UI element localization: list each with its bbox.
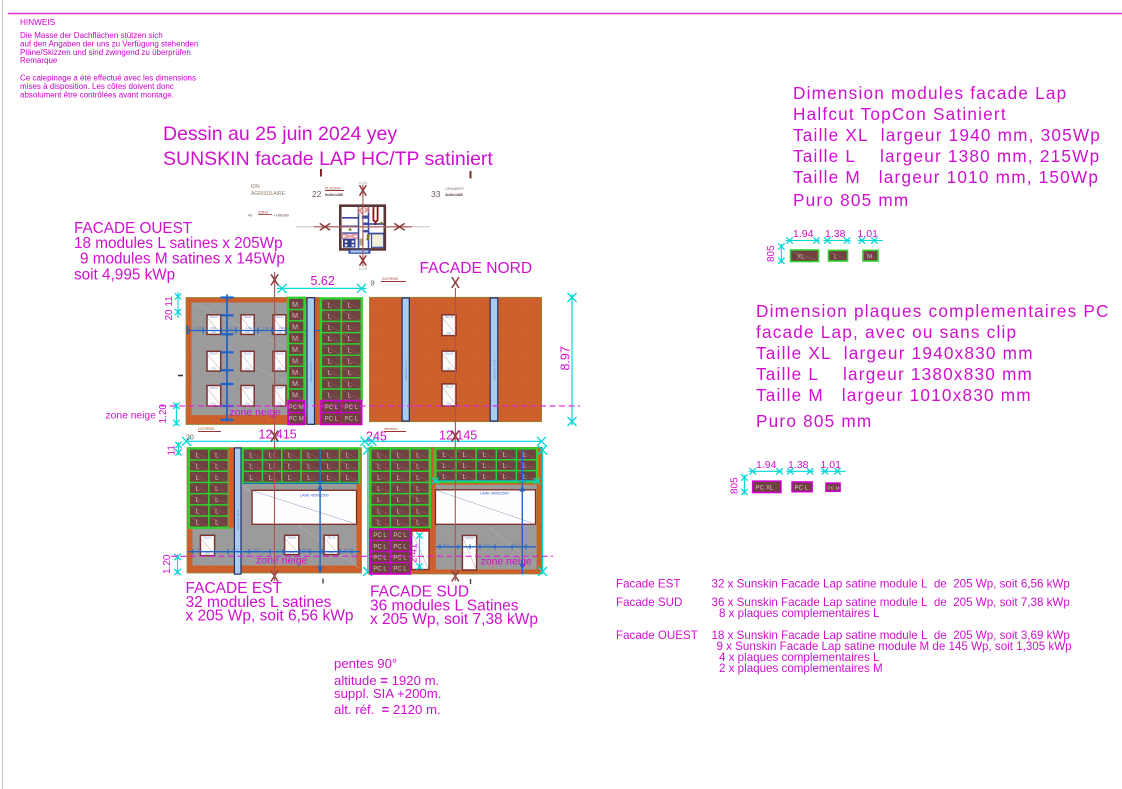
- svg-text:Puro 805 mm: Puro 805 mm: [756, 411, 872, 431]
- svg-text:GGL: GGL: [447, 369, 453, 371]
- svg-text:HINWEIS: HINWEIS: [20, 18, 56, 27]
- svg-text:GGL: GGL: [211, 404, 217, 406]
- svg-text:absolument être contrôlées ava: absolument être contrôlées avant montage…: [20, 90, 174, 99]
- svg-text:L: L: [396, 473, 400, 482]
- svg-text:L: L: [346, 473, 350, 482]
- svg-text:GGL: GGL: [277, 404, 283, 406]
- svg-text:PC L: PC L: [795, 484, 809, 491]
- svg-text:L: L: [328, 391, 332, 400]
- svg-text:L: L: [288, 473, 292, 482]
- svg-text:9 modules M satines x 145Wp: 9 modules M satines x 145Wp: [80, 251, 285, 268]
- svg-text:L: L: [328, 379, 332, 388]
- svg-text:4 r.04: 4 r.04: [359, 267, 368, 271]
- svg-text:DOOR988: DOOR988: [198, 427, 214, 431]
- svg-text:M: M: [292, 379, 298, 388]
- svg-text:L: L: [348, 323, 352, 332]
- svg-text:L: L: [288, 450, 292, 459]
- svg-text:PC L: PC L: [393, 533, 407, 539]
- svg-text:L: L: [396, 506, 400, 515]
- svg-text:L: L: [215, 462, 219, 471]
- svg-text:L: L: [416, 473, 420, 482]
- svg-text:5x40x1480: 5x40x1480: [325, 193, 343, 197]
- svg-text:GGL: GGL: [245, 369, 251, 371]
- svg-text:90.4: 90.4: [302, 547, 308, 551]
- svg-text:VELUX: VELUX: [287, 536, 296, 540]
- svg-text:L: L: [249, 473, 253, 482]
- svg-text:L: L: [195, 462, 199, 471]
- svg-text:1.54: 1.54: [279, 326, 285, 330]
- svg-text:M: M: [292, 334, 298, 343]
- svg-text:L: L: [377, 462, 381, 471]
- svg-text:PC L: PC L: [393, 566, 407, 572]
- svg-text:L: L: [442, 472, 446, 481]
- svg-text:L: L: [195, 506, 199, 515]
- svg-text:L: L: [328, 300, 332, 309]
- svg-text:Dimension modules facade Lap: Dimension modules facade Lap: [793, 83, 1067, 103]
- svg-text:L: L: [377, 484, 381, 493]
- svg-text:L: L: [483, 461, 487, 470]
- svg-text:L: L: [483, 450, 487, 459]
- svg-text:pentes 90°: pentes 90°: [334, 656, 397, 671]
- svg-text:PC M: PC M: [828, 485, 840, 491]
- svg-text:VELUX: VELUX: [243, 315, 252, 319]
- svg-text:+ HSGdm: + HSGdm: [273, 214, 289, 218]
- svg-text:GGL: GGL: [211, 332, 217, 334]
- svg-text:L: L: [416, 506, 420, 515]
- svg-text:VELUX: VELUX: [275, 352, 284, 356]
- svg-text:VELUX: VELUX: [203, 536, 212, 540]
- svg-text:suppl. SIA +200m.: suppl. SIA +200m.: [334, 686, 441, 701]
- svg-text:Dessin au 25 juin 2024 yey: Dessin au 25 juin 2024 yey: [163, 123, 397, 145]
- svg-text:90.4: 90.4: [344, 547, 350, 551]
- svg-text:Taille M largeur 1010 mm, 15: Taille M largeur 1010 mm, 150Wp: [793, 167, 1099, 187]
- svg-text:M: M: [292, 300, 298, 309]
- svg-text:L: L: [307, 450, 311, 459]
- svg-text:2/3Hd: 2/3Hd: [258, 211, 268, 215]
- svg-text:ENERGIE PLUS: ENERGIE PLUS: [493, 360, 497, 381]
- svg-text:L: L: [328, 357, 332, 366]
- svg-text:M: M: [292, 311, 298, 320]
- svg-text:9: 9: [371, 279, 375, 288]
- svg-text:Facade OUEST: Facade OUEST: [616, 629, 698, 642]
- svg-text:L: L: [328, 334, 332, 343]
- svg-text:SUNSKIN facade LAP HC/TP satin: SUNSKIN facade LAP HC/TP satiniert: [163, 148, 493, 170]
- svg-text:zone neige: zone neige: [106, 411, 157, 422]
- svg-text:L: L: [195, 473, 199, 482]
- svg-text:L: L: [442, 450, 446, 459]
- svg-text:L: L: [269, 450, 273, 459]
- svg-text:soit 4,995 kWp: soit 4,995 kWp: [74, 267, 175, 284]
- svg-text:Puro 805 mm: Puro 805 mm: [793, 190, 909, 210]
- svg-text:L: L: [377, 518, 381, 527]
- svg-text:L: L: [377, 495, 381, 504]
- svg-text:L: L: [307, 462, 311, 471]
- svg-text:ENERGIE PLUS: ENERGIE PLUS: [404, 360, 408, 381]
- svg-text:alt. réf. = 2120 m.: alt. réf. = 2120 m.: [334, 702, 441, 717]
- svg-text:M: M: [292, 368, 298, 377]
- svg-text:L: L: [416, 462, 420, 471]
- svg-text:L: L: [326, 473, 330, 482]
- svg-text:L: L: [348, 334, 352, 343]
- svg-text:L: L: [326, 450, 330, 459]
- svg-text:90.4: 90.4: [232, 547, 238, 551]
- svg-text:L: L: [416, 450, 420, 459]
- svg-text:GGL: GGL: [447, 333, 453, 335]
- svg-text:L: L: [348, 357, 352, 366]
- svg-text:L: L: [503, 472, 507, 481]
- svg-text:M: M: [292, 345, 298, 354]
- svg-text:L: L: [396, 450, 400, 459]
- svg-text:FACADE NORD: FACADE NORD: [420, 260, 533, 277]
- svg-text:90.4: 90.4: [254, 547, 260, 551]
- svg-text:1.54: 1.54: [228, 326, 234, 330]
- svg-text:GGL: GGL: [245, 332, 251, 334]
- svg-text:90.4: 90.4: [443, 542, 449, 546]
- svg-text:1.38: 1.38: [825, 228, 846, 240]
- svg-text:90.4: 90.4: [196, 547, 202, 551]
- svg-text:1.54: 1.54: [195, 326, 201, 330]
- svg-text:1.38: 1.38: [788, 459, 809, 471]
- svg-text:L: L: [215, 484, 219, 493]
- svg-text:PC XL: PC XL: [756, 485, 774, 492]
- svg-text:VELUX: VELUX: [445, 315, 454, 319]
- svg-text:PC L: PC L: [373, 533, 387, 539]
- svg-text:L: L: [462, 450, 466, 459]
- svg-text:x 205 Wp, soit 6,56 kWp: x 205 Wp, soit 6,56 kWp: [186, 608, 354, 625]
- svg-text:DOOR988: DOOR988: [382, 277, 398, 281]
- svg-text:1.54: 1.54: [210, 326, 216, 330]
- svg-text:L: L: [328, 346, 332, 355]
- svg-text:L: L: [269, 462, 273, 471]
- svg-text:Dimension plaques complementai: Dimension plaques complementaires PC: [756, 301, 1110, 321]
- svg-text:L: L: [416, 518, 420, 527]
- svg-text:L: L: [346, 462, 350, 471]
- svg-text:2 x plaques complementaires M: 2 x plaques complementaires M: [719, 662, 883, 675]
- svg-text:L: L: [288, 462, 292, 471]
- svg-text:1.54: 1.54: [246, 326, 252, 330]
- svg-text:LAME 4500x2500: LAME 4500x2500: [480, 492, 509, 496]
- svg-text:zone neige: zone neige: [481, 556, 533, 568]
- svg-text:L: L: [503, 461, 507, 470]
- svg-text:VELUX: VELUX: [243, 352, 252, 356]
- svg-text:PC L: PC L: [373, 566, 387, 572]
- svg-text:L: L: [377, 450, 381, 459]
- svg-text:L: L: [442, 461, 446, 470]
- svg-text:L: L: [483, 472, 487, 481]
- svg-text:VELUX: VELUX: [243, 386, 252, 390]
- svg-text:1.94: 1.94: [756, 459, 777, 471]
- svg-text:GGL: GGL: [205, 553, 211, 555]
- svg-text:L: L: [462, 461, 466, 470]
- svg-text:PC L: PC L: [345, 417, 359, 423]
- svg-text:M: M: [292, 357, 298, 366]
- svg-text:x 205 Wp, soit 7,38 kWp: x 205 Wp, soit 7,38 kWp: [370, 611, 538, 628]
- svg-text:L: L: [416, 495, 420, 504]
- svg-text:L: L: [348, 346, 352, 355]
- svg-text:2.41: 2.41: [409, 543, 420, 563]
- svg-text:20 11: 20 11: [164, 296, 175, 321]
- svg-text:GGL: GGL: [211, 369, 217, 371]
- svg-text:VELUX: VELUX: [327, 536, 336, 540]
- svg-text:L: L: [215, 518, 219, 527]
- svg-text:GGL: GGL: [447, 404, 453, 406]
- svg-text:L: L: [249, 450, 253, 459]
- svg-text:L: L: [307, 473, 311, 482]
- svg-text:L: L: [326, 462, 330, 471]
- svg-text:PC L: PC L: [393, 544, 407, 550]
- svg-text:L: L: [215, 450, 219, 459]
- svg-text:L: L: [416, 484, 420, 493]
- svg-text:22: 22: [312, 189, 322, 199]
- svg-text:L: L: [195, 484, 199, 493]
- svg-text:L: L: [377, 473, 381, 482]
- svg-text:8 x plaques complementaires L: 8 x plaques complementaires L: [719, 607, 880, 620]
- svg-text:Taille L largeur 1380 mm, 2: Taille L largeur 1380 mm, 215Wp: [793, 146, 1100, 166]
- svg-text:M: M: [292, 323, 298, 332]
- svg-text:L: L: [523, 461, 527, 470]
- svg-text:URANER7: URANER7: [445, 186, 465, 191]
- svg-text:M: M: [292, 391, 298, 400]
- svg-text:Taille L largeur 1380x830 m: Taille L largeur 1380x830 mm: [756, 364, 1033, 384]
- svg-text:IDN: IDN: [251, 184, 260, 190]
- svg-text:1.20: 1.20: [162, 554, 173, 574]
- svg-text:L: L: [348, 312, 352, 321]
- svg-text:VELUX: VELUX: [210, 315, 219, 319]
- svg-text:5.62: 5.62: [311, 274, 335, 288]
- svg-text:L: L: [328, 368, 332, 377]
- svg-text:XL: XL: [797, 254, 805, 261]
- svg-text:18 modules L satines x 205Wp: 18 modules L satines x 205Wp: [74, 235, 283, 252]
- svg-text:805: 805: [766, 245, 777, 262]
- svg-text:Remarque: Remarque: [20, 56, 58, 65]
- svg-text:LAME 4500x2500: LAME 4500x2500: [300, 494, 329, 498]
- svg-text:L: L: [396, 495, 400, 504]
- svg-text:L: L: [396, 462, 400, 471]
- svg-text:GGL: GGL: [277, 332, 283, 334]
- svg-text:90.4: 90.4: [514, 542, 520, 546]
- svg-text:1.01: 1.01: [858, 228, 879, 240]
- svg-text:zone neige: zone neige: [230, 407, 282, 419]
- svg-text:VELUX: VELUX: [445, 384, 454, 388]
- svg-text:4b: 4b: [248, 213, 253, 218]
- svg-text:GGL: GGL: [329, 552, 335, 554]
- svg-text:PORTE: PORTE: [465, 536, 474, 540]
- svg-text:Halfcut TopCon Satiniert: Halfcut TopCon Satiniert: [793, 104, 1007, 124]
- svg-text:L: L: [215, 506, 219, 515]
- svg-text:Facade SUD: Facade SUD: [616, 596, 682, 609]
- svg-text:L: L: [215, 473, 219, 482]
- svg-text:VELUX: VELUX: [275, 386, 284, 390]
- svg-text:ENERGIE PLUS: ENERGIE PLUS: [309, 362, 313, 383]
- svg-text:PC M: PC M: [289, 417, 304, 423]
- svg-text:L: L: [348, 379, 352, 388]
- svg-text:L: L: [503, 450, 507, 459]
- svg-text:L: L: [195, 518, 199, 527]
- svg-text:M: M: [867, 253, 872, 260]
- svg-text:L: L: [215, 495, 219, 504]
- svg-text:1.20: 1.20: [158, 404, 169, 424]
- svg-text:L: L: [396, 484, 400, 493]
- svg-text:4 r.04: 4 r.04: [359, 181, 368, 185]
- svg-text:L: L: [377, 506, 381, 515]
- svg-text:L: L: [348, 391, 352, 400]
- svg-text:L: L: [834, 253, 838, 260]
- svg-text:L: L: [462, 472, 466, 481]
- svg-text:ENERGIE PLUS: ENERGIE PLUS: [236, 510, 240, 531]
- svg-text:32 x Sunskin Facade Lap satine: 32 x Sunskin Facade Lap satine module L …: [712, 578, 1070, 591]
- svg-text:L: L: [346, 450, 350, 459]
- svg-text:L: L: [328, 312, 332, 321]
- svg-text:L: L: [269, 473, 273, 482]
- svg-text:Taille XL largeur 1940 mm, 30: Taille XL largeur 1940 mm, 305Wp: [793, 125, 1101, 145]
- svg-text:L: L: [348, 368, 352, 377]
- svg-text:L: L: [523, 472, 527, 481]
- svg-text:20: 20: [186, 435, 194, 442]
- svg-text:805: 805: [730, 477, 741, 494]
- svg-text:PLACING: PLACING: [325, 187, 341, 191]
- svg-text:L: L: [396, 518, 400, 527]
- svg-text:AGRISOLAIRE: AGRISOLAIRE: [251, 191, 286, 197]
- svg-text:L: L: [348, 300, 352, 309]
- svg-text:elevation: elevation: [384, 427, 398, 431]
- svg-text:1.94: 1.94: [793, 228, 814, 240]
- svg-text:GGL: GGL: [245, 404, 251, 406]
- svg-text:PC L: PC L: [325, 417, 339, 423]
- svg-text:33: 33: [431, 189, 441, 199]
- svg-text:PC L: PC L: [373, 544, 387, 550]
- svg-text:L: L: [523, 450, 527, 459]
- svg-text:VELUX: VELUX: [210, 386, 219, 390]
- svg-text:VELUX: VELUX: [275, 315, 284, 319]
- svg-text:L: L: [249, 462, 253, 471]
- svg-text:1.54: 1.54: [263, 326, 269, 330]
- svg-text:VELUX: VELUX: [445, 352, 454, 356]
- svg-text:8.97: 8.97: [559, 346, 573, 370]
- svg-text:4x40x1460: 4x40x1460: [445, 193, 463, 197]
- svg-text:L: L: [328, 323, 332, 332]
- svg-text:Taille M largeur 1010x830 mm: Taille M largeur 1010x830 mm: [756, 385, 1032, 405]
- svg-text:Facade EST: Facade EST: [616, 578, 680, 591]
- svg-text:GGL: GGL: [277, 369, 283, 371]
- svg-text:90.4: 90.4: [484, 542, 490, 546]
- svg-text:L: L: [195, 450, 199, 459]
- svg-text:VELUX: VELUX: [210, 352, 219, 356]
- svg-text:L: L: [195, 495, 199, 504]
- svg-text:Taille XL largeur 1940x830 mm: Taille XL largeur 1940x830 mm: [756, 343, 1034, 363]
- svg-text:facade Lap, avec ou sans clip: facade Lap, avec ou sans clip: [756, 322, 1017, 342]
